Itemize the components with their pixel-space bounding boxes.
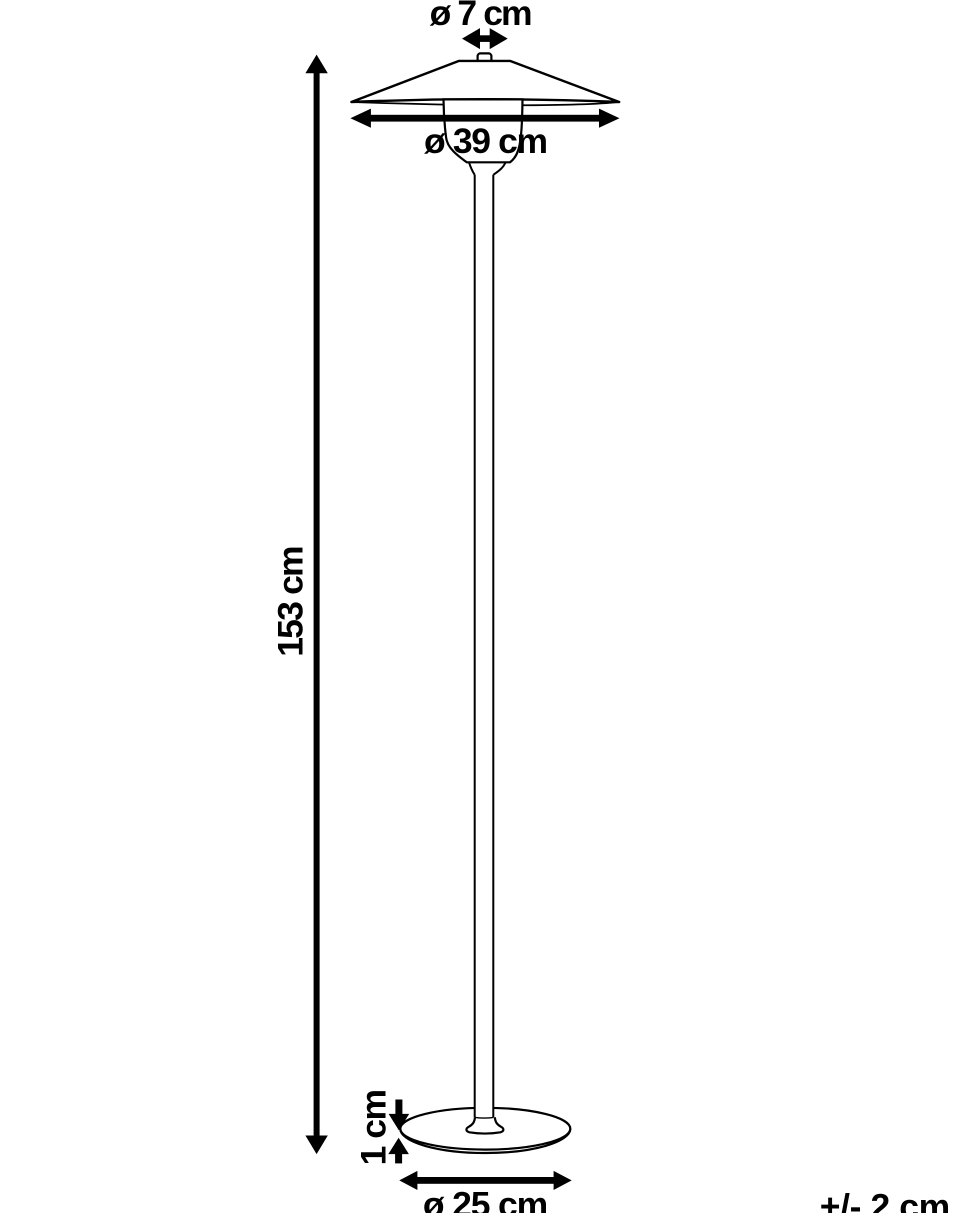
svg-text:ø 25 cm: ø 25 cm bbox=[423, 1184, 547, 1213]
svg-text:153 cm: 153 cm bbox=[271, 547, 311, 657]
svg-text:1 cm: 1 cm bbox=[354, 1090, 394, 1165]
svg-text:ø 7 cm: ø 7 cm bbox=[430, 0, 531, 33]
svg-text:+/- 2 cm: +/- 2 cm bbox=[820, 1187, 950, 1213]
svg-text:ø 39 cm: ø 39 cm bbox=[424, 121, 547, 161]
